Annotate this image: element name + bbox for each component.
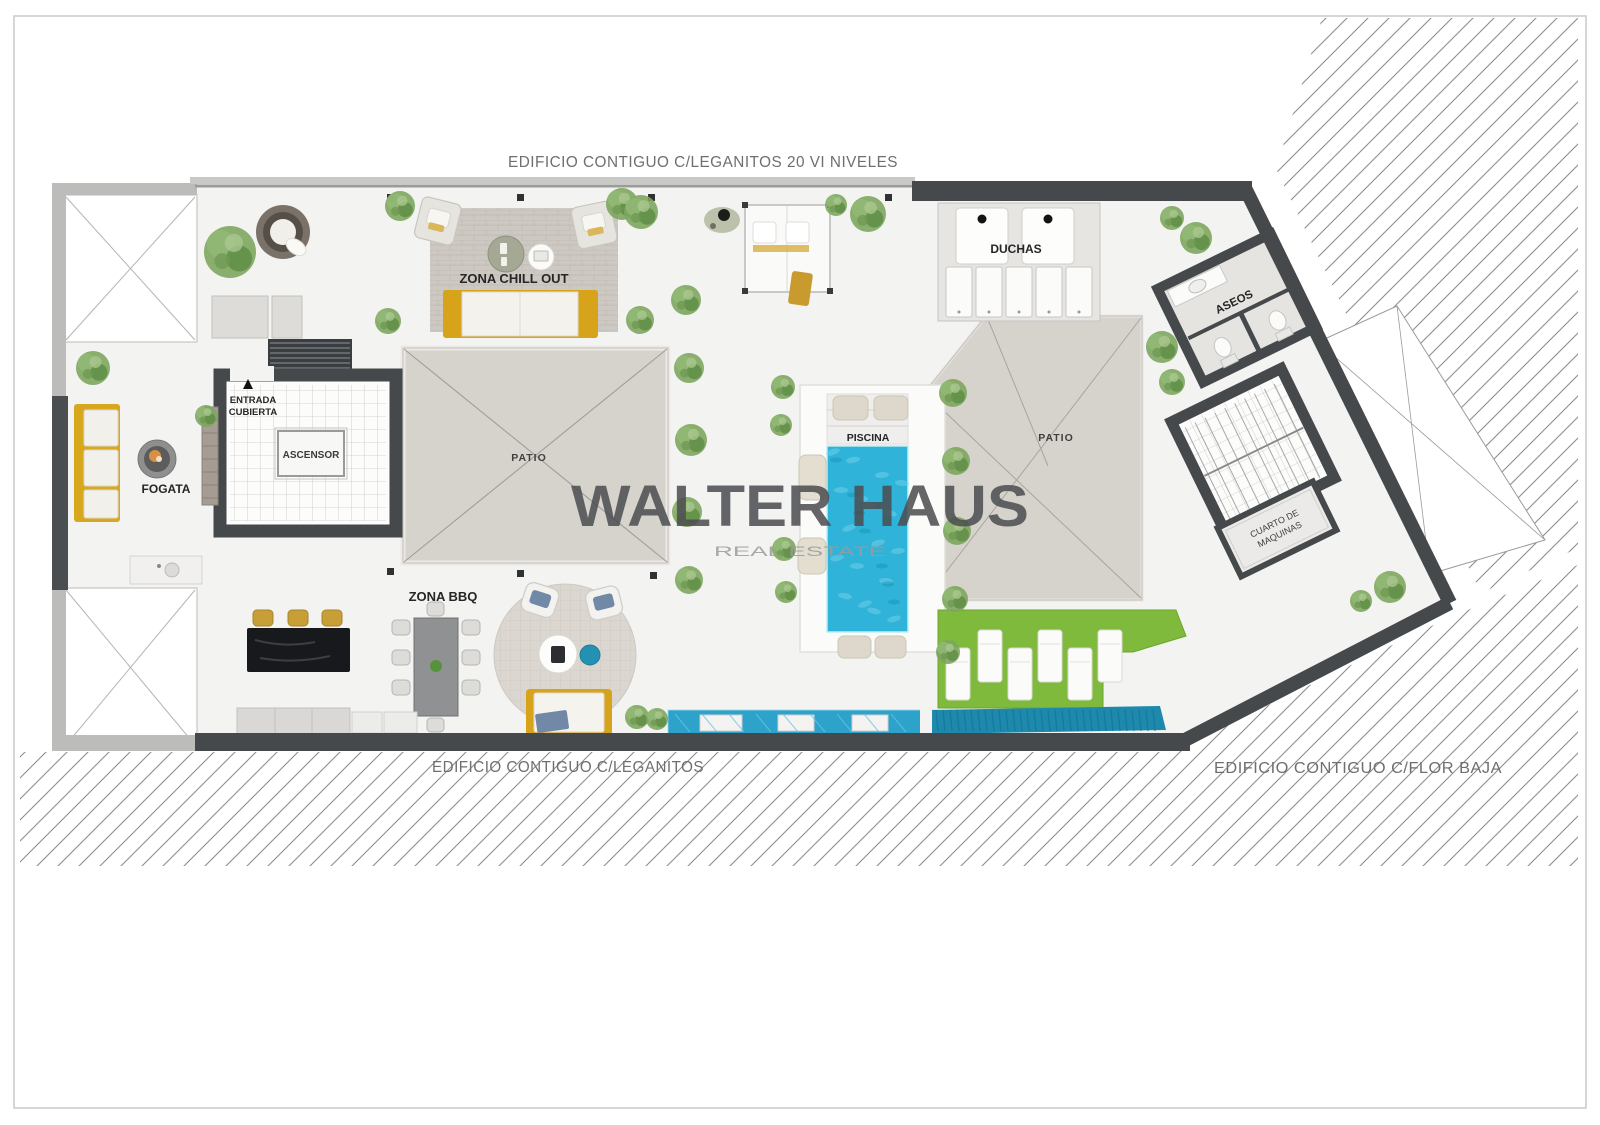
egg-chair (256, 205, 310, 259)
label-entrada-1: ENTRADA (230, 395, 277, 406)
watermark-tagline: REAL ESTATE (714, 543, 886, 559)
label-zona-bbq: ZONA BBQ (409, 589, 478, 604)
label-patio-right: PATIO (1038, 432, 1074, 444)
label-duchas: DUCHAS (990, 242, 1041, 256)
label-entrada-2: CUBIERTA (229, 407, 278, 418)
water-channel-west (668, 710, 924, 736)
sink-icon (165, 563, 179, 577)
label-fogata: FOGATA (142, 482, 191, 496)
label-ascensor: ASCENSOR (283, 450, 340, 461)
shower-head-icon (1044, 215, 1053, 224)
label-adjacent-right: EDIFICIO CONTIGUO C/FLOR BAJA (1214, 760, 1502, 777)
shower-head-icon (978, 215, 987, 224)
watermark-brand: WALTER HAUS (571, 474, 1029, 539)
zona-chill-out (413, 196, 618, 338)
label-adjacent-top: EDIFICIO CONTIGUO C/LEGANITOS 20 VI NIVE… (508, 154, 898, 171)
water-channel-east (930, 706, 1166, 734)
duchas-area (938, 203, 1100, 321)
floor-plan-page: ASEOS CUARTO DE MAQUINAS (0, 0, 1600, 1125)
label-patio-left: PATIO (511, 452, 547, 464)
skylight-box-top-left (64, 195, 197, 342)
floor-plan-drawing: ASEOS CUARTO DE MAQUINAS (0, 0, 1600, 1125)
channel-step (920, 708, 932, 736)
label-zona-chill-out: ZONA CHILL OUT (459, 271, 568, 286)
label-adjacent-bottom: EDIFICIO CONTIGUO C/LEGANITOS (432, 759, 704, 776)
skylight-box-bottom-left (64, 588, 197, 747)
label-piscina: PISCINA (847, 432, 890, 444)
